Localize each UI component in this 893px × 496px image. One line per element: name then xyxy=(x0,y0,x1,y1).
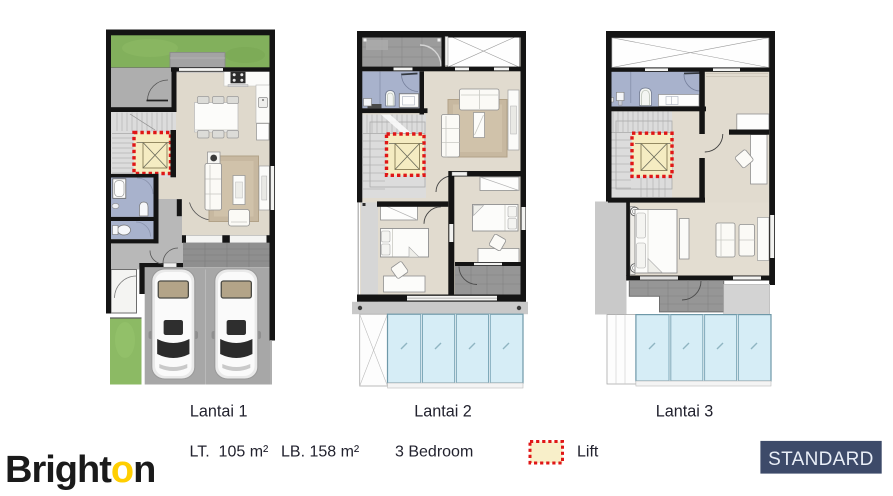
svg-text:STANDARD: STANDARD xyxy=(768,449,874,470)
svg-text:Lantai 2: Lantai 2 xyxy=(414,403,472,421)
svg-text:Lift: Lift xyxy=(577,444,599,461)
svg-text:LB. 158 m²: LB. 158 m² xyxy=(281,444,360,461)
svg-text:Lantai 1: Lantai 1 xyxy=(190,403,248,421)
svg-text:Lantai 3: Lantai 3 xyxy=(656,403,714,421)
svg-text:Brighton: Brighton xyxy=(5,449,155,491)
svg-text:LT. 105 m²: LT. 105 m² xyxy=(190,444,270,461)
svg-text:3 Bedroom: 3 Bedroom xyxy=(395,444,473,461)
